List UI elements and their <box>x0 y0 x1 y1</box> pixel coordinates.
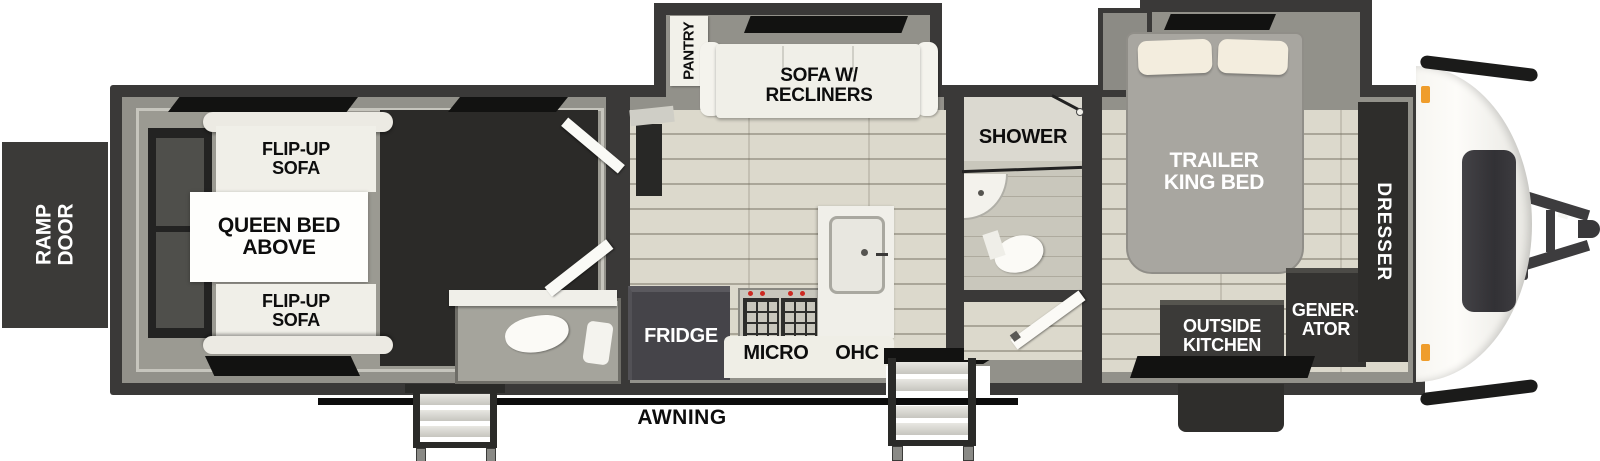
bed-label-box: TRAILER KING BED <box>1136 146 1292 198</box>
garage-steps-rail-left <box>413 388 420 448</box>
awning-label: AWNING <box>612 407 752 429</box>
pantry-label: PANTRY <box>681 22 696 80</box>
stove-knob <box>760 291 765 296</box>
entertainment-nook <box>636 124 662 196</box>
stove-grate-right <box>781 298 817 340</box>
sink-drain <box>861 249 868 256</box>
garage-steps-rung <box>420 426 490 437</box>
garage-bottom-window <box>205 356 360 376</box>
stove-grate-left <box>743 298 779 340</box>
sofa-window <box>744 16 908 33</box>
bedroom-bottom-window <box>1130 356 1315 378</box>
hitch-coupler <box>1578 220 1600 238</box>
bed-pillow-left <box>1137 39 1212 76</box>
garage-steps-rung <box>420 394 490 405</box>
queen-bed-label-box: QUEEN BED ABOVE <box>190 192 368 282</box>
garage-top-window <box>168 97 358 112</box>
garage-steps-rail-right <box>490 388 497 448</box>
entry-steps-rail-left <box>888 358 896 446</box>
entry-steps-rung <box>896 362 968 374</box>
front-cap-window <box>1462 150 1516 312</box>
garage-steps-leg-left <box>416 448 426 461</box>
outside-kitchen-label: OUTSIDE KITCHEN <box>1183 317 1261 354</box>
bath-sink-drain <box>978 190 984 196</box>
generator: GENER- ATOR <box>1286 268 1366 367</box>
flip-up-sofa-bottom-backrest <box>203 336 393 354</box>
entry-steps-rail-right <box>968 358 976 446</box>
garage-steps-rung <box>420 410 490 421</box>
queen-bed-label: QUEEN BED ABOVE <box>218 215 340 258</box>
entry-steps-rung <box>896 423 968 435</box>
bed-label: TRAILER KING BED <box>1164 150 1264 193</box>
garage-steps-leg-right <box>486 448 496 461</box>
entry-steps-leg-left <box>892 446 903 461</box>
floorplan: RAMP DOOR FLIP-UP SOFA QUEEN BED ABOVE F… <box>0 0 1600 461</box>
flip-up-sofa-bottom: FLIP-UP SOFA <box>216 284 376 338</box>
entry-steps-rung <box>896 406 968 418</box>
fridge: FRIDGE <box>628 286 730 380</box>
garage-ceiling-vent <box>448 97 568 112</box>
ramp-door: RAMP DOOR <box>2 142 108 328</box>
exterior-storage-step <box>1178 384 1284 432</box>
marker-light-top <box>1421 86 1430 103</box>
half-bath-counter <box>449 290 617 306</box>
dresser-label: DRESSER <box>1373 183 1393 282</box>
flip-up-sofa-bottom-label: FLIP-UP SOFA <box>262 292 330 329</box>
sofa-label: SOFA W/ RECLINERS <box>765 66 872 105</box>
stove-knob <box>788 291 793 296</box>
marker-light-bottom <box>1421 344 1430 361</box>
shower-label: SHOWER <box>958 127 1088 148</box>
flip-up-sofa-top-label: FLIP-UP SOFA <box>262 140 330 177</box>
entry-steps-leg-right <box>963 446 974 461</box>
front-cap-trim-bottom <box>1420 379 1539 406</box>
ramp-door-label: RAMP DOOR <box>33 204 76 266</box>
stove-knob <box>748 291 753 296</box>
shower-head-tip <box>1076 108 1084 116</box>
bed-window <box>1164 14 1276 30</box>
sofa-label-box: SOFA W/ RECLINERS <box>728 62 910 110</box>
hitch-cross-member <box>1546 210 1555 252</box>
bed-pillow-right <box>1217 39 1288 75</box>
sink-faucet <box>876 253 888 256</box>
entry-steps-rung <box>896 379 968 391</box>
ohc-label: OHC <box>828 343 886 364</box>
stove-knob <box>800 291 805 296</box>
dresser: DRESSER <box>1358 102 1408 362</box>
generator-label: GENER- ATOR <box>1292 301 1360 338</box>
kitchen-sink <box>829 216 885 294</box>
flip-up-sofa-top: FLIP-UP SOFA <box>216 126 376 192</box>
fridge-label: FRIDGE <box>644 326 718 347</box>
micro-label: MICRO <box>732 343 820 364</box>
